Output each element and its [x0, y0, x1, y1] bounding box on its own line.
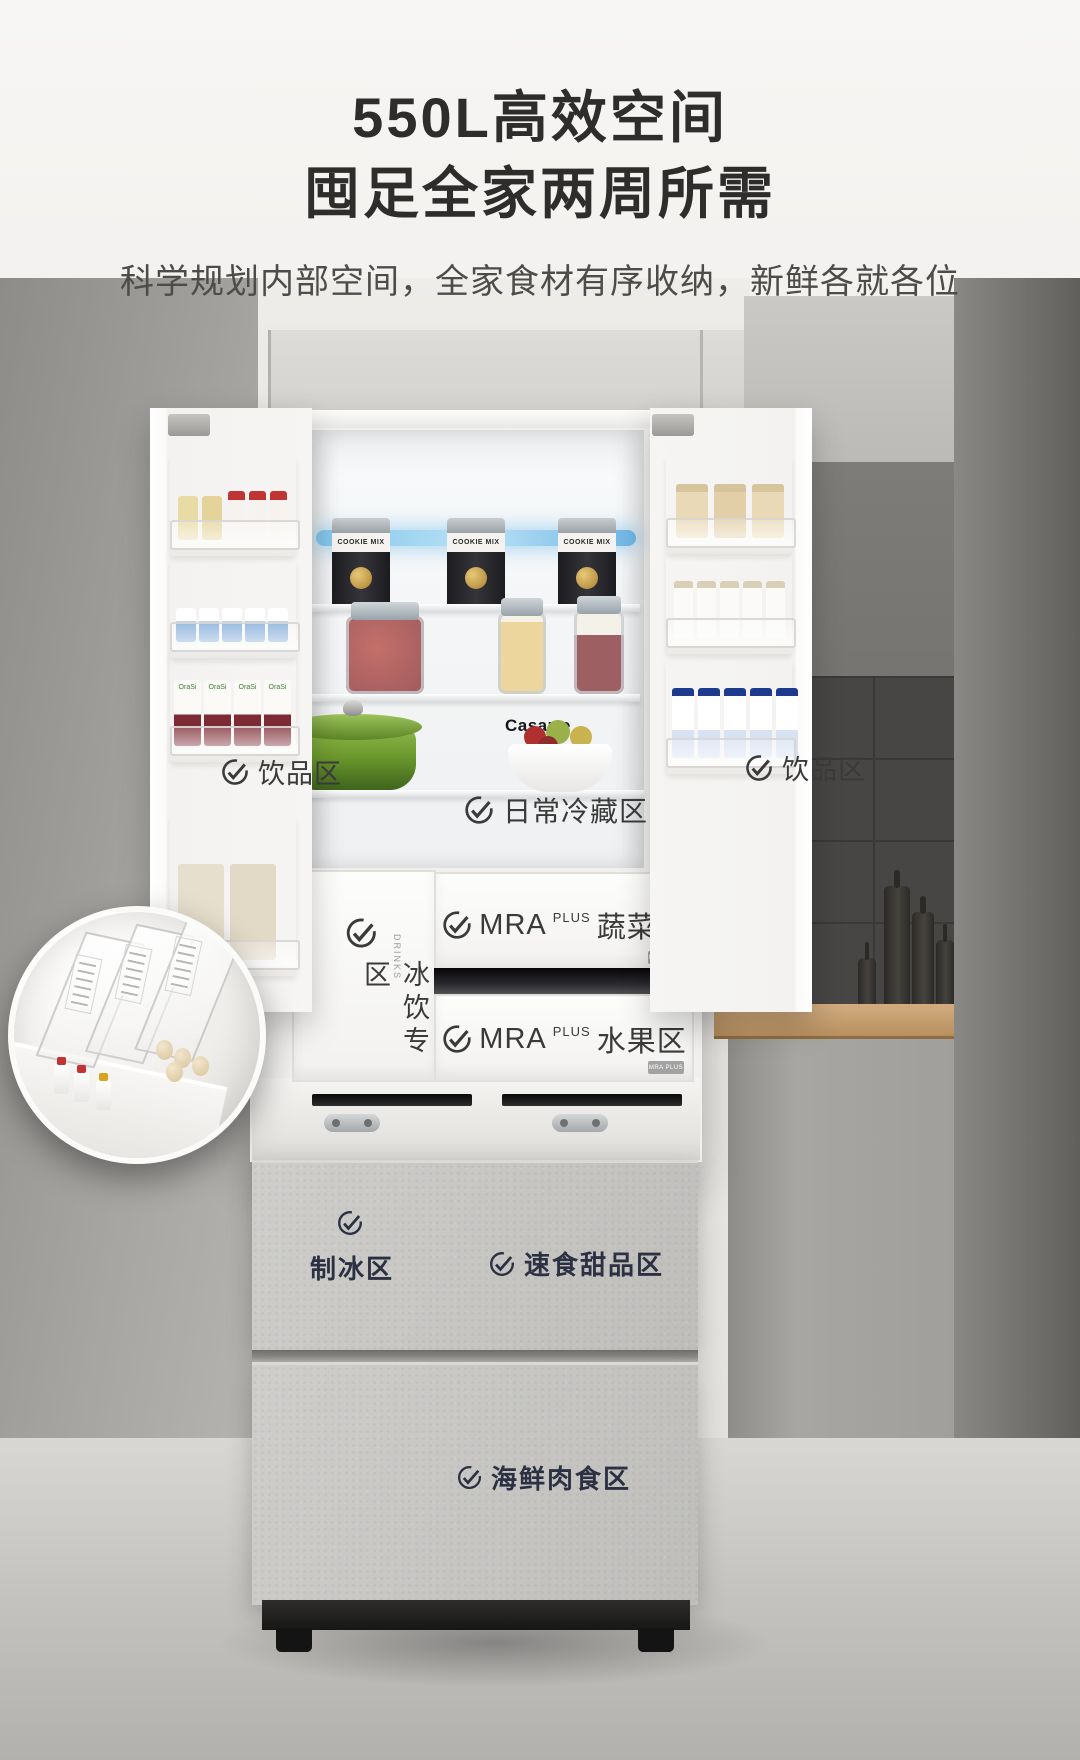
inset-egg: [156, 1040, 173, 1060]
title-line-1: 550L高效空间: [0, 80, 1080, 156]
can-lid: [332, 518, 390, 533]
check-icon: [441, 1023, 473, 1055]
inset-bottle: [54, 1064, 69, 1094]
fridge-base: [262, 1600, 690, 1630]
door-hinge: [168, 414, 210, 436]
freezer-drawer-2: 海鲜肉食区: [252, 1362, 698, 1605]
fruit-mra: MRA: [479, 1023, 546, 1056]
left-door-bin-1: [170, 456, 296, 556]
fridge-foot: [638, 1628, 674, 1652]
zone-label-text: 日常冷藏区: [503, 790, 648, 830]
pasta-jar: [498, 612, 546, 694]
promo-page: 550L高效空间 囤足全家两周所需 科学规划内部空间，全家食材有序收纳，新鲜各就…: [0, 0, 1080, 1760]
zone-label-fruit: MRAPLUS水果区: [436, 1018, 692, 1060]
right-door-bin-2: [666, 554, 792, 654]
check-icon: [344, 916, 378, 950]
left-door-bin-3: OraSi OraSi OraSi OraSi: [170, 652, 296, 762]
check-icon: [336, 1209, 364, 1237]
cookie-can: COOKIE MIX: [447, 518, 505, 604]
cookie-can: COOKIE MIX: [332, 518, 390, 604]
vent-slot: [502, 1094, 682, 1106]
zone-label-left-door: 饮品区: [220, 752, 342, 791]
jar-glass: [346, 616, 424, 694]
kitchen-wall-right: [954, 278, 1080, 1443]
door-hinge: [652, 414, 694, 436]
zone-label-text: 海鲜肉食区: [491, 1459, 631, 1496]
right-lower-cabinet: [728, 1039, 954, 1443]
title-line-2: 囤足全家两周所需: [0, 156, 1080, 232]
jar-glass: [574, 610, 624, 694]
right-door-bin-1: [666, 456, 792, 554]
hero-block: 550L高效空间 囤足全家两周所需 科学规划内部空间，全家食材有序收纳，新鲜各就…: [0, 0, 1080, 303]
bean-jar: [346, 616, 424, 694]
can-lid: [558, 518, 616, 533]
freezer-drawer-1: 制冰区 速食甜品区: [252, 1160, 698, 1353]
veg-plus: PLUS: [553, 910, 591, 925]
can-lid: [447, 518, 505, 533]
jar-glass: [498, 612, 546, 694]
pot-knob: [343, 700, 363, 716]
preserve-jar: [574, 610, 624, 694]
check-icon: [441, 909, 473, 941]
cookie-can: COOKIE MIX: [558, 518, 616, 604]
ice-drink-check: [344, 916, 378, 955]
check-icon: [456, 1464, 483, 1491]
can-medallion: [465, 567, 487, 589]
vent-slot: [312, 1094, 472, 1106]
can-medallion: [576, 567, 598, 589]
check-icon: [220, 757, 250, 787]
jar-lid: [351, 602, 420, 620]
door-hinge-bottom: [552, 1114, 608, 1132]
zone-label-text: 速食甜品区: [524, 1245, 664, 1282]
jar-lid: [501, 598, 543, 616]
counter-carafe: [936, 940, 954, 1006]
veg-mra: MRA: [479, 909, 546, 942]
drawer-detail-inset: [8, 906, 266, 1164]
ice-drink-drawer: 冰饮专区 DRINKS: [292, 870, 436, 1082]
jar-lid: [577, 596, 621, 614]
counter-bottle: [912, 912, 934, 1006]
check-icon: [488, 1250, 516, 1278]
can-body: [447, 552, 505, 604]
mra-badge: MRA PLUS: [648, 1061, 684, 1074]
zone-label-dessert: 速食甜品区: [488, 1245, 664, 1282]
check-icon: [744, 753, 774, 783]
fruit-name: 水果区: [597, 1018, 687, 1060]
fridge-foot: [276, 1628, 312, 1652]
can-label: COOKIE MIX: [332, 533, 390, 552]
ice-drink-side-label: DRINKS: [392, 934, 402, 1004]
can-label: COOKIE MIX: [447, 533, 505, 552]
bin-rail: [170, 622, 300, 652]
zone-label-cold: 日常冷藏区: [463, 790, 648, 830]
bin-rail: [666, 518, 796, 548]
zone-label-seafood: 海鲜肉食区: [456, 1459, 631, 1496]
inset-bottle: [74, 1072, 89, 1102]
right-door: [650, 408, 812, 1012]
freezer-divider: [252, 1350, 698, 1362]
counter-bottle: [884, 886, 910, 1006]
page-subtitle: 科学规划内部空间，全家食材有序收纳，新鲜各就各位: [0, 254, 1080, 303]
left-door-bin-2: [170, 560, 296, 658]
can-medallion: [350, 567, 372, 589]
can-body: [332, 552, 390, 604]
fridge-bottom-bar: [252, 1078, 700, 1160]
inset-egg: [166, 1062, 183, 1082]
door-hinge-bottom: [324, 1114, 380, 1132]
page-title: 550L高效空间 囤足全家两周所需: [0, 80, 1080, 232]
can-label: COOKIE MIX: [558, 533, 616, 552]
fruit-plus: PLUS: [553, 1024, 591, 1039]
zone-label-ice: 制冰区: [310, 1249, 394, 1286]
zone-label-text: 饮品区: [258, 752, 342, 791]
zone-label-right-door: 饮品区: [744, 748, 866, 787]
check-icon: [463, 794, 495, 826]
inset-egg: [192, 1056, 209, 1076]
bin-rail: [666, 618, 796, 648]
counter-glass: [858, 958, 876, 1006]
zone-label-text: 饮品区: [782, 748, 866, 787]
inset-bottle: [96, 1080, 111, 1110]
bin-rail: [170, 520, 300, 550]
ice-zone-check: [336, 1209, 364, 1242]
